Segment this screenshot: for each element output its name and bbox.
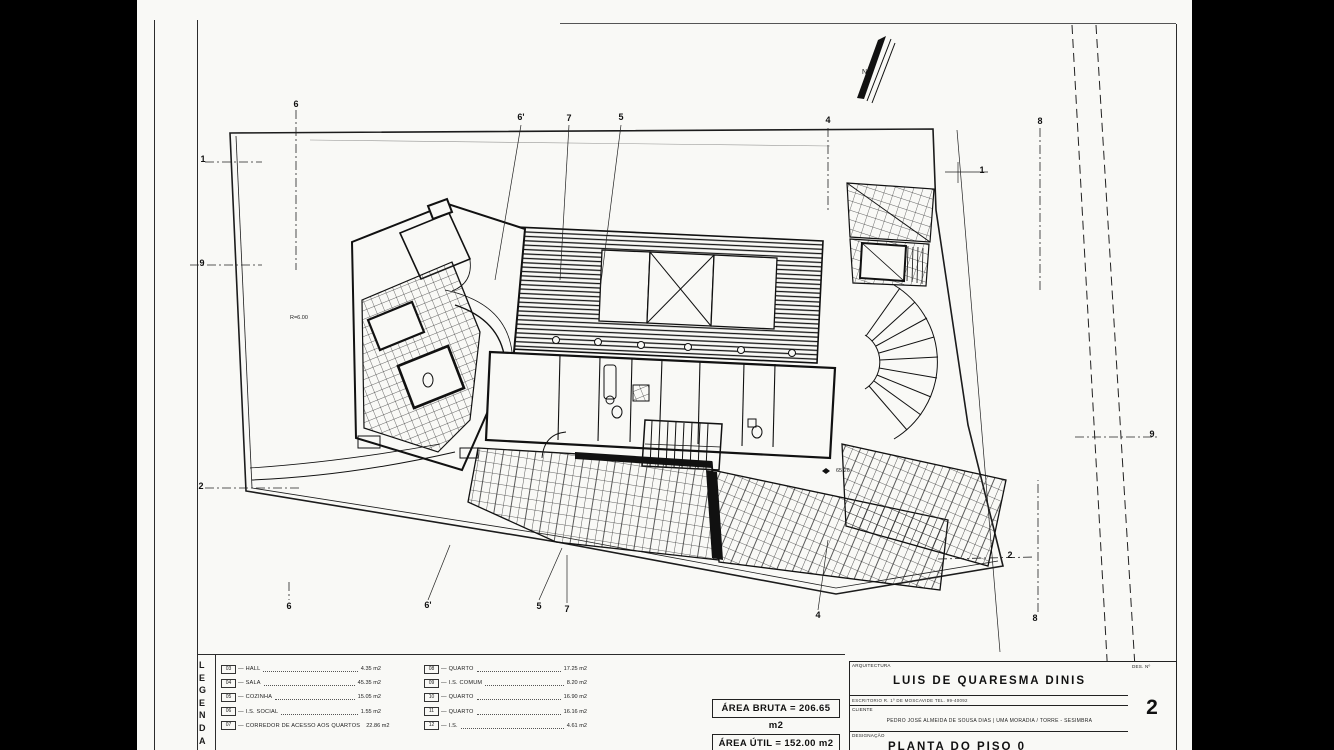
grid-marker-2: 2 xyxy=(198,481,203,491)
legend-item: 10—QUARTO16.90 m2 xyxy=(424,690,587,704)
upper-patio xyxy=(847,183,934,286)
legend-item-label: QUARTO xyxy=(449,709,474,715)
legend-item-area: 45.35 m2 xyxy=(358,680,381,686)
legend-title-letter: L xyxy=(199,659,214,672)
cliente-label: CLIENTE xyxy=(852,707,873,712)
grid-marker-4: 4 xyxy=(825,115,830,125)
legend-item-number: 07 xyxy=(221,721,236,730)
legend-item-label: I.S. COMUM xyxy=(449,680,483,686)
drawing-number: 2 xyxy=(1128,696,1176,720)
legend-title-letter: A xyxy=(199,735,214,748)
legend-item: 05—COZINHA15.05 m2 xyxy=(221,690,381,704)
legend-item-dash: — xyxy=(441,709,447,715)
legend-item-number: 09 xyxy=(424,679,439,688)
legend-item-area: 15.05 m2 xyxy=(358,694,381,700)
plan-annotation: R=6.00 xyxy=(290,315,308,321)
legend-item: 12—I.S.4.61 m2 xyxy=(424,719,587,733)
legend-item-dash: — xyxy=(441,666,447,672)
legend-item-area: 8.20 m2 xyxy=(567,680,587,686)
legend-item-number: 04 xyxy=(221,679,236,688)
grid-marker-5: 5 xyxy=(536,601,541,611)
legend-item-dash: — xyxy=(441,723,447,729)
legend-item-leader xyxy=(477,713,561,715)
grid-marker-1: 1 xyxy=(200,154,205,164)
legend-item-label: CORREDOR DE ACESSO AOS QUARTOS xyxy=(246,723,361,729)
legend-item: 09—I.S. COMUM8.20 m2 xyxy=(424,676,587,690)
legend-item-number: 06 xyxy=(221,707,236,716)
legend-title-letter: E xyxy=(199,697,214,710)
legend-item-label: QUARTO xyxy=(449,666,474,672)
legend-item: 07—CORREDOR DE ACESSO AOS QUARTOS22.86 m… xyxy=(221,719,381,733)
paved-terraces xyxy=(468,432,1006,590)
grid-marker-2: 2 xyxy=(1007,550,1012,560)
curved-steps-fan xyxy=(865,285,938,439)
legend-item-number: 11 xyxy=(424,707,439,716)
legend-item-dash: — xyxy=(441,694,447,700)
legend-title-letter: N xyxy=(199,709,214,722)
legend-item-number: 10 xyxy=(424,693,439,702)
grid-marker-8: 8 xyxy=(1032,613,1037,623)
grid-marker-9: 9 xyxy=(199,258,204,268)
north-label: N xyxy=(862,69,867,76)
des-no-label: DES. Nº xyxy=(1132,664,1150,669)
grid-marker-9: 9 xyxy=(1149,429,1154,439)
legend-item-area: 16.90 m2 xyxy=(564,694,587,700)
title-block-office-row: ESCRITORIO R. 1º DE MOSCAVIDE TEL. 99-40… xyxy=(850,696,1129,706)
legend-title-letter: G xyxy=(199,684,214,697)
drawing-title: PLANTA DO PISO 0 xyxy=(850,732,1129,750)
legend-item-dash: — xyxy=(238,723,244,729)
area-bruta-box: ÁREA BRUTA = 206.65 m2 xyxy=(712,699,840,718)
legend-item-label: I.S. xyxy=(449,723,458,729)
legend-title: LEGENDA xyxy=(199,659,214,747)
legend-item: 03—HALL4.35 m2 xyxy=(221,662,381,676)
legend-item-area: 17.25 m2 xyxy=(564,666,587,672)
legend-title-letter: D xyxy=(199,722,214,735)
legend-item-area: 4.61 m2 xyxy=(567,723,587,729)
legend-item-dash: — xyxy=(441,680,447,686)
legend-item: 04—SALA45.35 m2 xyxy=(221,676,381,690)
legend-item-dash: — xyxy=(238,666,244,672)
area-util-box: ÁREA ÚTIL = 152.00 m2 xyxy=(712,734,840,750)
grid-marker-6': 6' xyxy=(517,112,524,122)
floor-plan-drawing: N xyxy=(0,0,1334,750)
plan-annotation: 65.26 xyxy=(836,468,850,474)
rooms-strip xyxy=(486,352,835,458)
title-block-designation-row: DESIGNAÇÃO PLANTA DO PISO 0 xyxy=(850,732,1129,750)
legend-item-leader xyxy=(275,698,355,700)
legend-item-leader xyxy=(477,670,561,672)
drawing-number-cell: DES. Nº 2 xyxy=(1128,661,1177,750)
legend-item-leader xyxy=(281,713,358,715)
title-block-architect-row: ARQUITECTURA LUIS DE QUARESMA DINIS xyxy=(850,662,1129,696)
legend-item-leader xyxy=(461,727,564,729)
legend-item-label: COZINHA xyxy=(246,694,273,700)
legend-title-letter: E xyxy=(199,672,214,685)
title-block-client-row: CLIENTE PEDRO JOSÉ ALMEIDA DE SOUSA DIAS… xyxy=(850,706,1129,732)
legend-item-area: 1.55 m2 xyxy=(361,709,381,715)
legend-item-dash: — xyxy=(238,709,244,715)
legend-item-dash: — xyxy=(238,680,244,686)
legend-item-area: 22.86 m2 xyxy=(366,723,389,729)
arquitectura-label: ARQUITECTURA xyxy=(852,663,891,668)
legend-item-leader xyxy=(485,684,563,686)
legend-item-number: 08 xyxy=(424,665,439,674)
grid-marker-8: 8 xyxy=(1037,116,1042,126)
legend-item-area: 16.16 m2 xyxy=(564,709,587,715)
office-line: ESCRITORIO R. 1º DE MOSCAVIDE TEL. 99-40… xyxy=(852,698,968,703)
legend-item-number: 05 xyxy=(221,693,236,702)
legend-item: 11—QUARTO16.16 m2 xyxy=(424,705,587,719)
grid-marker-6': 6' xyxy=(424,600,431,610)
legend-item-dash: — xyxy=(238,694,244,700)
grid-marker-7: 7 xyxy=(566,113,571,123)
legend-column-right: 08—QUARTO17.25 m209—I.S. COMUM8.20 m210—… xyxy=(424,662,587,733)
grid-marker-7: 7 xyxy=(564,604,569,614)
north-arrow: N xyxy=(857,36,895,103)
road-boundary-lines xyxy=(957,25,1140,750)
legend-item-label: I.S. SOCIAL xyxy=(246,709,279,715)
grid-marker-1: 1 xyxy=(979,165,984,175)
designacao-label: DESIGNAÇÃO xyxy=(852,733,885,738)
area-util-text: ÁREA ÚTIL = 152.00 m2 xyxy=(719,738,834,749)
scanned-plan-sheet: N 66'754811929266'5748R=6.0065.26 LEGEND… xyxy=(0,0,1334,750)
legend-item: 06—I.S. SOCIAL1.55 m2 xyxy=(221,705,381,719)
architect-name: LUIS DE QUARESMA DINIS xyxy=(850,662,1129,687)
legend-item-number: 12 xyxy=(424,721,439,730)
legend-item: 08—QUARTO17.25 m2 xyxy=(424,662,587,676)
legend-column-left: 03—HALL4.35 m204—SALA45.35 m205—COZINHA1… xyxy=(221,662,381,733)
roof-deck xyxy=(511,227,823,363)
legend-item-number: 03 xyxy=(221,665,236,674)
legend-item-leader xyxy=(264,684,355,686)
grid-marker-6: 6 xyxy=(286,601,291,611)
grid-marker-5: 5 xyxy=(618,112,623,122)
legend-item-label: QUARTO xyxy=(449,694,474,700)
grid-marker-4: 4 xyxy=(815,610,820,620)
legend-item-leader xyxy=(263,670,357,672)
grid-marker-6: 6 xyxy=(293,99,298,109)
title-block: ARQUITECTURA LUIS DE QUARESMA DINIS ESCR… xyxy=(849,661,1130,750)
legend-item-label: SALA xyxy=(246,680,261,686)
client-name: PEDRO JOSÉ ALMEIDA DE SOUSA DIAS | UMA M… xyxy=(850,706,1129,724)
legend-item-leader xyxy=(477,698,561,700)
legend-item-area: 4.35 m2 xyxy=(361,666,381,672)
legend-item-label: HALL xyxy=(246,666,261,672)
